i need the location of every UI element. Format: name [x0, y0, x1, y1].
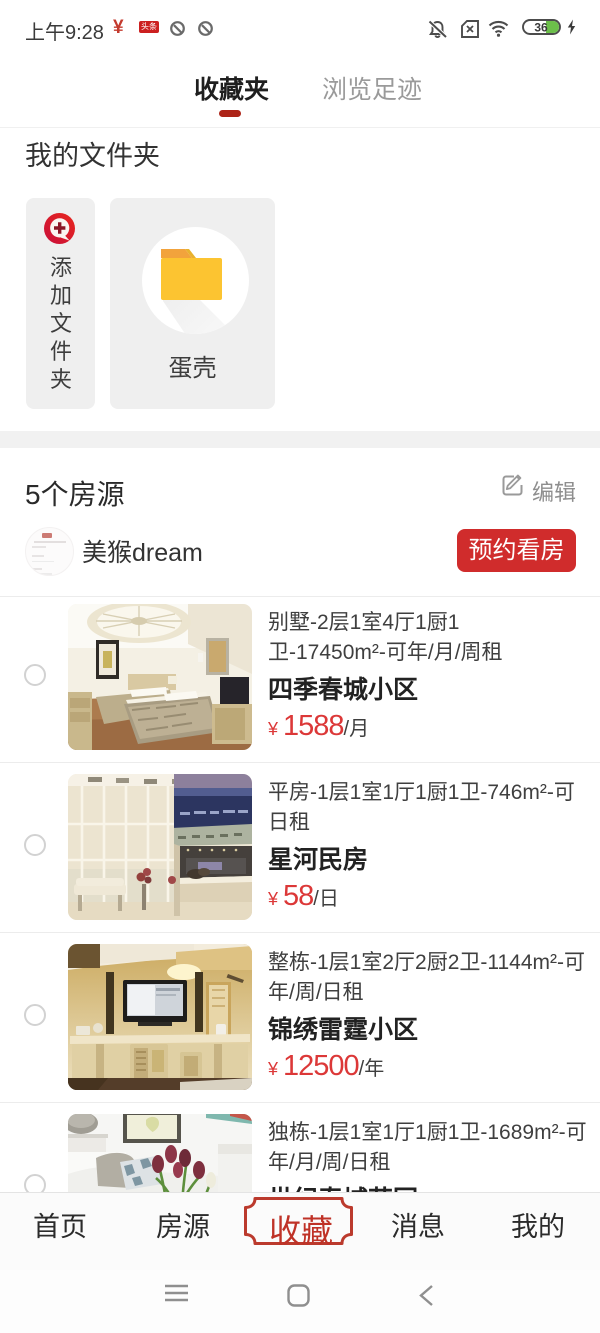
svg-text:36: 36 — [534, 21, 548, 35]
